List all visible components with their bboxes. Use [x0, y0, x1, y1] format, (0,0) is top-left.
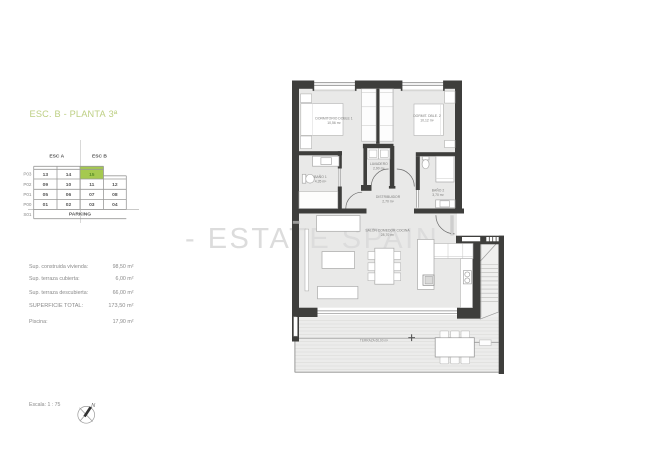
svg-text:P01: P01: [23, 192, 32, 197]
svg-text:3,70 m²: 3,70 m²: [432, 193, 444, 197]
svg-text:4,35 m²: 4,35 m²: [315, 180, 327, 184]
svg-text:DISTRIBUIDOR: DISTRIBUIDOR: [376, 195, 401, 199]
svg-text:14: 14: [66, 172, 72, 178]
svg-text:S01: S01: [23, 212, 32, 217]
svg-text:11: 11: [89, 182, 94, 188]
svg-text:DORMITORIO DOBLE 1: DORMITORIO DOBLE 1: [315, 116, 352, 120]
svg-text:LAVADERO: LAVADERO: [370, 162, 388, 166]
svg-text:02: 02: [66, 202, 72, 208]
svg-text:BAÑO 2: BAÑO 2: [432, 188, 445, 193]
svg-text:12: 12: [112, 182, 118, 188]
svg-text:ESC B: ESC B: [92, 154, 107, 160]
svg-text:05: 05: [43, 192, 49, 198]
svg-text:10: 10: [66, 182, 72, 188]
svg-text:01: 01: [43, 202, 49, 208]
svg-text:09: 09: [43, 182, 49, 188]
svg-text:06: 06: [66, 192, 72, 198]
svg-text:04: 04: [112, 202, 118, 208]
svg-text:07: 07: [89, 192, 95, 198]
svg-text:10,12 m²: 10,12 m²: [420, 118, 434, 122]
svg-text:N: N: [91, 403, 95, 409]
svg-text:P03: P03: [23, 172, 32, 177]
svg-text:ESC A: ESC A: [49, 154, 64, 160]
svg-text:TERRAZA 66,00 m²: TERRAZA 66,00 m²: [360, 338, 388, 342]
svg-text:P02: P02: [23, 182, 32, 187]
svg-text:03: 03: [89, 202, 95, 208]
svg-text:PARKING: PARKING: [69, 212, 91, 218]
svg-text:SALÓN COMEDOR COCINA: SALÓN COMEDOR COCINA: [365, 228, 410, 233]
svg-text:13: 13: [43, 172, 49, 178]
svg-text:2,70 m²: 2,70 m²: [382, 200, 394, 204]
svg-text:10,56 m²: 10,56 m²: [327, 121, 341, 125]
svg-text:2,90 m²: 2,90 m²: [373, 167, 385, 171]
svg-text:28,70 m²: 28,70 m²: [381, 233, 395, 237]
svg-text:08: 08: [112, 192, 118, 198]
svg-text:DORMIT. DBLE. 2: DORMIT. DBLE. 2: [413, 114, 441, 118]
svg-text:15: 15: [89, 172, 95, 178]
svg-text:BAÑO 1: BAÑO 1: [314, 174, 327, 179]
svg-text:P00: P00: [23, 202, 32, 207]
